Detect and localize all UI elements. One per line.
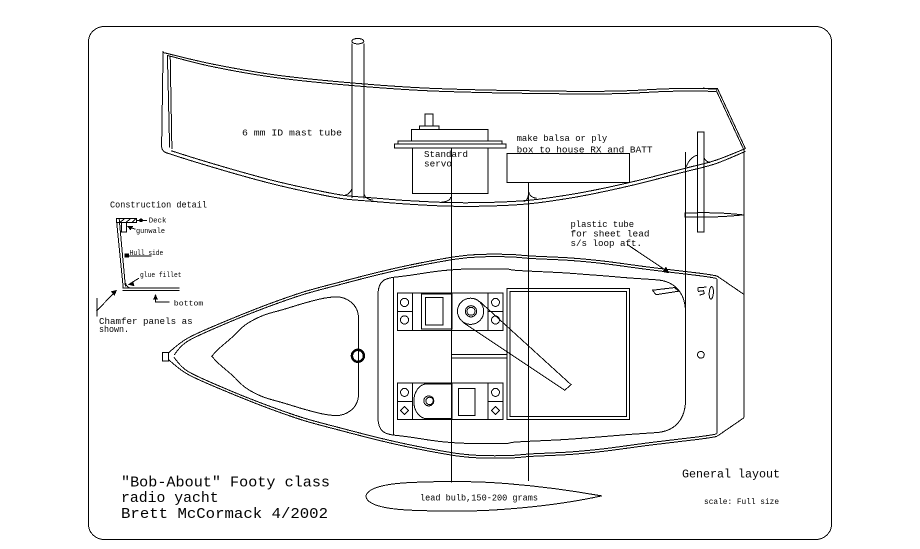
svg-text:shown.: shown. bbox=[99, 324, 129, 335]
svg-text:General layout: General layout bbox=[682, 468, 780, 482]
svg-text:make balsa or ply: make balsa or ply bbox=[517, 133, 608, 144]
svg-text:glue fillet: glue fillet bbox=[140, 272, 182, 280]
svg-text:s/s loop aft.: s/s loop aft. bbox=[571, 238, 643, 249]
svg-text:Brett McCormack 4/2002: Brett McCormack 4/2002 bbox=[121, 505, 328, 523]
svg-text:Deck: Deck bbox=[149, 217, 167, 225]
svg-text:box to house RX and BATT: box to house RX and BATT bbox=[517, 145, 653, 156]
svg-text:servo: servo bbox=[424, 159, 452, 170]
svg-text:6 mm ID mast tube: 6 mm ID mast tube bbox=[242, 127, 342, 138]
svg-text:lead bulb,150-200 grams: lead bulb,150-200 grams bbox=[420, 493, 538, 503]
svg-text:Hull side: Hull side bbox=[130, 250, 164, 258]
svg-text:Construction detail: Construction detail bbox=[110, 200, 207, 211]
svg-text:bottom: bottom bbox=[174, 301, 204, 309]
svg-text:gunwale: gunwale bbox=[136, 228, 165, 236]
svg-text:scale: Full size: scale: Full size bbox=[704, 498, 779, 507]
